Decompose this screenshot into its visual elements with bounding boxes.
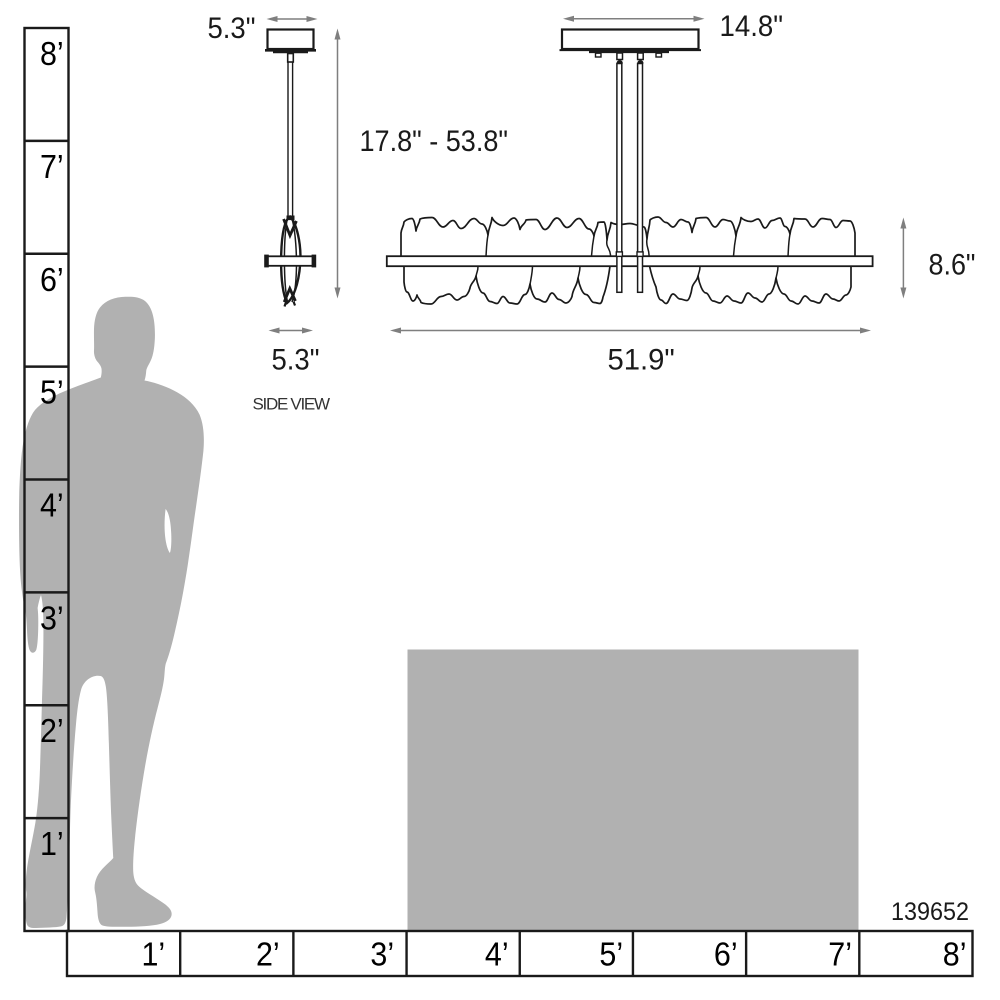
svg-text:5.3": 5.3" xyxy=(272,344,320,377)
svg-text:7’: 7’ xyxy=(828,936,852,973)
svg-text:8.6": 8.6" xyxy=(929,249,976,282)
svg-text:51.9": 51.9" xyxy=(608,344,675,377)
svg-text:2’: 2’ xyxy=(256,936,280,973)
svg-text:4’: 4’ xyxy=(485,936,509,973)
svg-text:3’: 3’ xyxy=(40,599,64,636)
svg-text:4’: 4’ xyxy=(40,487,64,524)
svg-text:1’: 1’ xyxy=(142,936,166,973)
svg-text:6’: 6’ xyxy=(714,936,738,973)
svg-text:2’: 2’ xyxy=(40,712,64,749)
svg-text:139652: 139652 xyxy=(891,898,969,926)
svg-text:1’: 1’ xyxy=(40,825,64,862)
svg-text:8’: 8’ xyxy=(40,35,64,72)
svg-text:SIDE VIEW: SIDE VIEW xyxy=(253,395,331,414)
svg-text:5’: 5’ xyxy=(599,936,623,973)
svg-text:6’: 6’ xyxy=(40,261,64,298)
svg-text:7’: 7’ xyxy=(40,148,64,185)
svg-text:5’: 5’ xyxy=(40,374,64,411)
svg-text:8’: 8’ xyxy=(943,936,967,973)
svg-text:3’: 3’ xyxy=(370,936,394,973)
svg-text:17.8" - 53.8": 17.8" - 53.8" xyxy=(360,125,509,158)
svg-text:14.8": 14.8" xyxy=(720,10,784,43)
svg-text:5.3": 5.3" xyxy=(208,12,256,45)
